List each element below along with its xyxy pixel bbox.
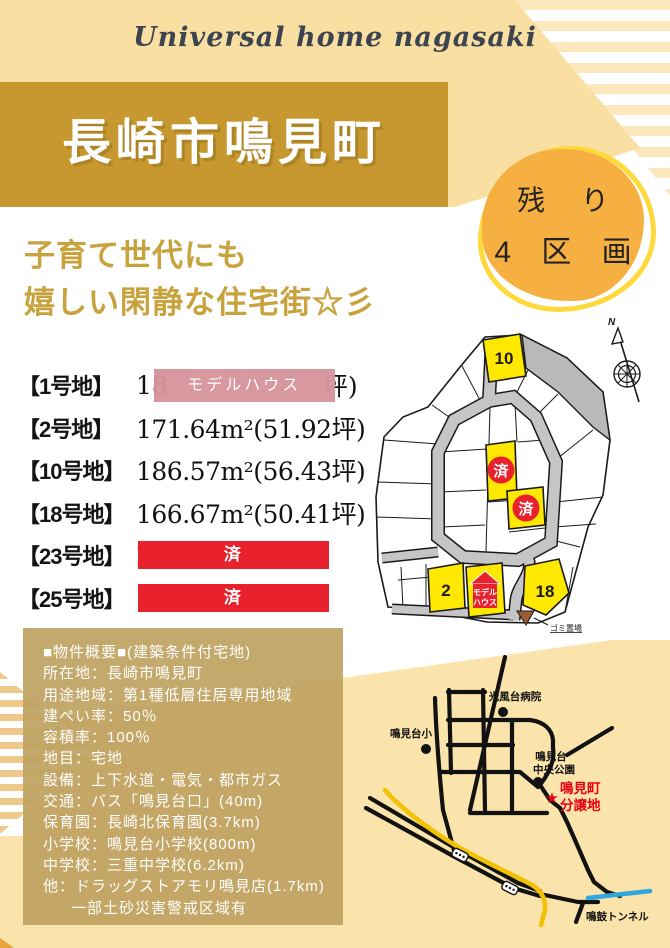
subdivision-plat-map: 10 2 18 済 済 モデル ハウス ゴミ置場 N (368, 312, 668, 644)
property-overview-box: ■物件概要■(建築条件付宅地) 所在地：長崎市鳴見町 用途地域：第1種低層住居専… (23, 628, 343, 925)
lot-row-1: 【1号地】 18 モデルハウス 坪) (18, 364, 370, 407)
model-house-text1: モデル (473, 587, 497, 597)
site-label-line1: 鳴見町 (560, 780, 601, 796)
elementary-dot (421, 744, 431, 754)
tagline-line2: 嬉しい閑静な住宅街☆彡 (24, 279, 376, 326)
overview-line: 保育園：長崎北保育園(3.7km) (43, 812, 343, 833)
lot-area-value: 186.57m²(56.43坪) (136, 452, 365, 488)
sold-mark-b: 済 (518, 500, 534, 518)
badge-line1: 残 り (503, 179, 623, 219)
compass-icon (612, 328, 640, 402)
brand-logo-text: Universal home nagasaki (0, 22, 670, 53)
tagline-line1: 子育て世代にも (24, 232, 376, 279)
lot-label: 【2号地】 (18, 412, 136, 444)
tunnel-label: 鳴鼓トンネル (586, 910, 649, 923)
overview-line: 一部土砂災害警戒区域有 (43, 898, 343, 919)
site-label-line2: 分譲地 (560, 797, 601, 813)
sold-mark-a: 済 (493, 462, 509, 480)
lot-label: 【23号地】 (18, 539, 136, 571)
overview-line: 他：ドラッグストアモリ鳴見店(1.7km) (43, 876, 343, 897)
overview-line: 設備：上下水道・電気・都市ガス (43, 770, 343, 791)
sold-overlay: 済 (138, 541, 329, 569)
overview-line: 交通：バス「鳴見台口」(40m) (43, 791, 343, 812)
park-dot (533, 777, 543, 787)
remaining-lots-badge: 残 り 4 区 画 (478, 146, 656, 312)
lot-list: 【1号地】 18 モデルハウス 坪) 【2号地】 171.64m²(51.92坪… (18, 364, 370, 619)
hospital-label: 光風台病院 (488, 690, 542, 703)
overview-line: 容積率：100％ (43, 727, 343, 748)
park-label-line2: 中央公園 (533, 763, 575, 776)
lot-row-23: 【23号地】 2 済 ) (18, 534, 370, 577)
lot-label: 【10号地】 (18, 454, 136, 486)
lot-row-10: 【10号地】 186.57m²(56.43坪) (18, 449, 370, 492)
overview-heading: ■物件概要■(建築条件付宅地) (43, 642, 343, 663)
lot-label: 【1号地】 (18, 369, 136, 401)
park-label-line1: 鳴見台 (535, 750, 567, 763)
flyer-page: Universal home nagasaki 長崎市鳴見町 残 り 4 区 画… (0, 0, 670, 948)
overview-line: 小学校：鳴見台小学校(800m) (43, 834, 343, 855)
sold-overlay: 済 (138, 584, 329, 612)
compass-north-label: N (608, 317, 616, 328)
overview-line: 建ぺい率：50％ (43, 706, 343, 727)
badge-body: 残 り 4 区 画 (482, 149, 644, 301)
lot-row-18: 【18号地】 166.67m²(50.41坪) (18, 492, 370, 535)
site-star-icon: ★ (545, 790, 558, 807)
overview-line: 所在地：長崎市鳴見町 (43, 663, 343, 684)
lot-area-value: 166.67m²(50.41坪) (136, 495, 365, 531)
title-banner: 長崎市鳴見町 (0, 82, 448, 207)
overview-line: 用途地域：第1種低層住居専用地域 (43, 685, 343, 706)
lot-row-2: 【2号地】 171.64m²(51.92坪) (18, 407, 370, 450)
lot-10-number: 10 (495, 349, 514, 368)
lot-area-value: 171.64m²(51.92坪) (136, 410, 365, 446)
elementary-label: 鳴見台小 (390, 727, 432, 740)
lot-label: 【18号地】 (18, 497, 136, 529)
tagline: 子育て世代にも 嬉しい閑静な住宅街☆彡 (24, 232, 376, 326)
overview-line: 地目：宅地 (43, 748, 343, 769)
model-house-overlay: モデルハウス (154, 369, 335, 402)
access-sketch-map: 光風台病院 鳴見台小 鳴見台 中央公園 ★ 鳴見町 分譲地 鳴鼓トンネル (360, 640, 670, 948)
lot-label: 【25号地】 (18, 582, 136, 614)
lot-2-number: 2 (441, 581, 450, 600)
model-house-text2: ハウス (473, 598, 497, 607)
page-title: 長崎市鳴見町 (0, 82, 448, 204)
hospital-dot (498, 707, 508, 717)
overview-line: 中学校：三重中学校(6.2km) (43, 855, 343, 876)
garbage-label: ゴミ置場 (550, 623, 582, 633)
lot-row-25: 【25号地】 1 済 ) (18, 577, 370, 620)
lot-18-number: 18 (536, 582, 555, 601)
badge-line2: 4 区 画 (483, 227, 642, 271)
